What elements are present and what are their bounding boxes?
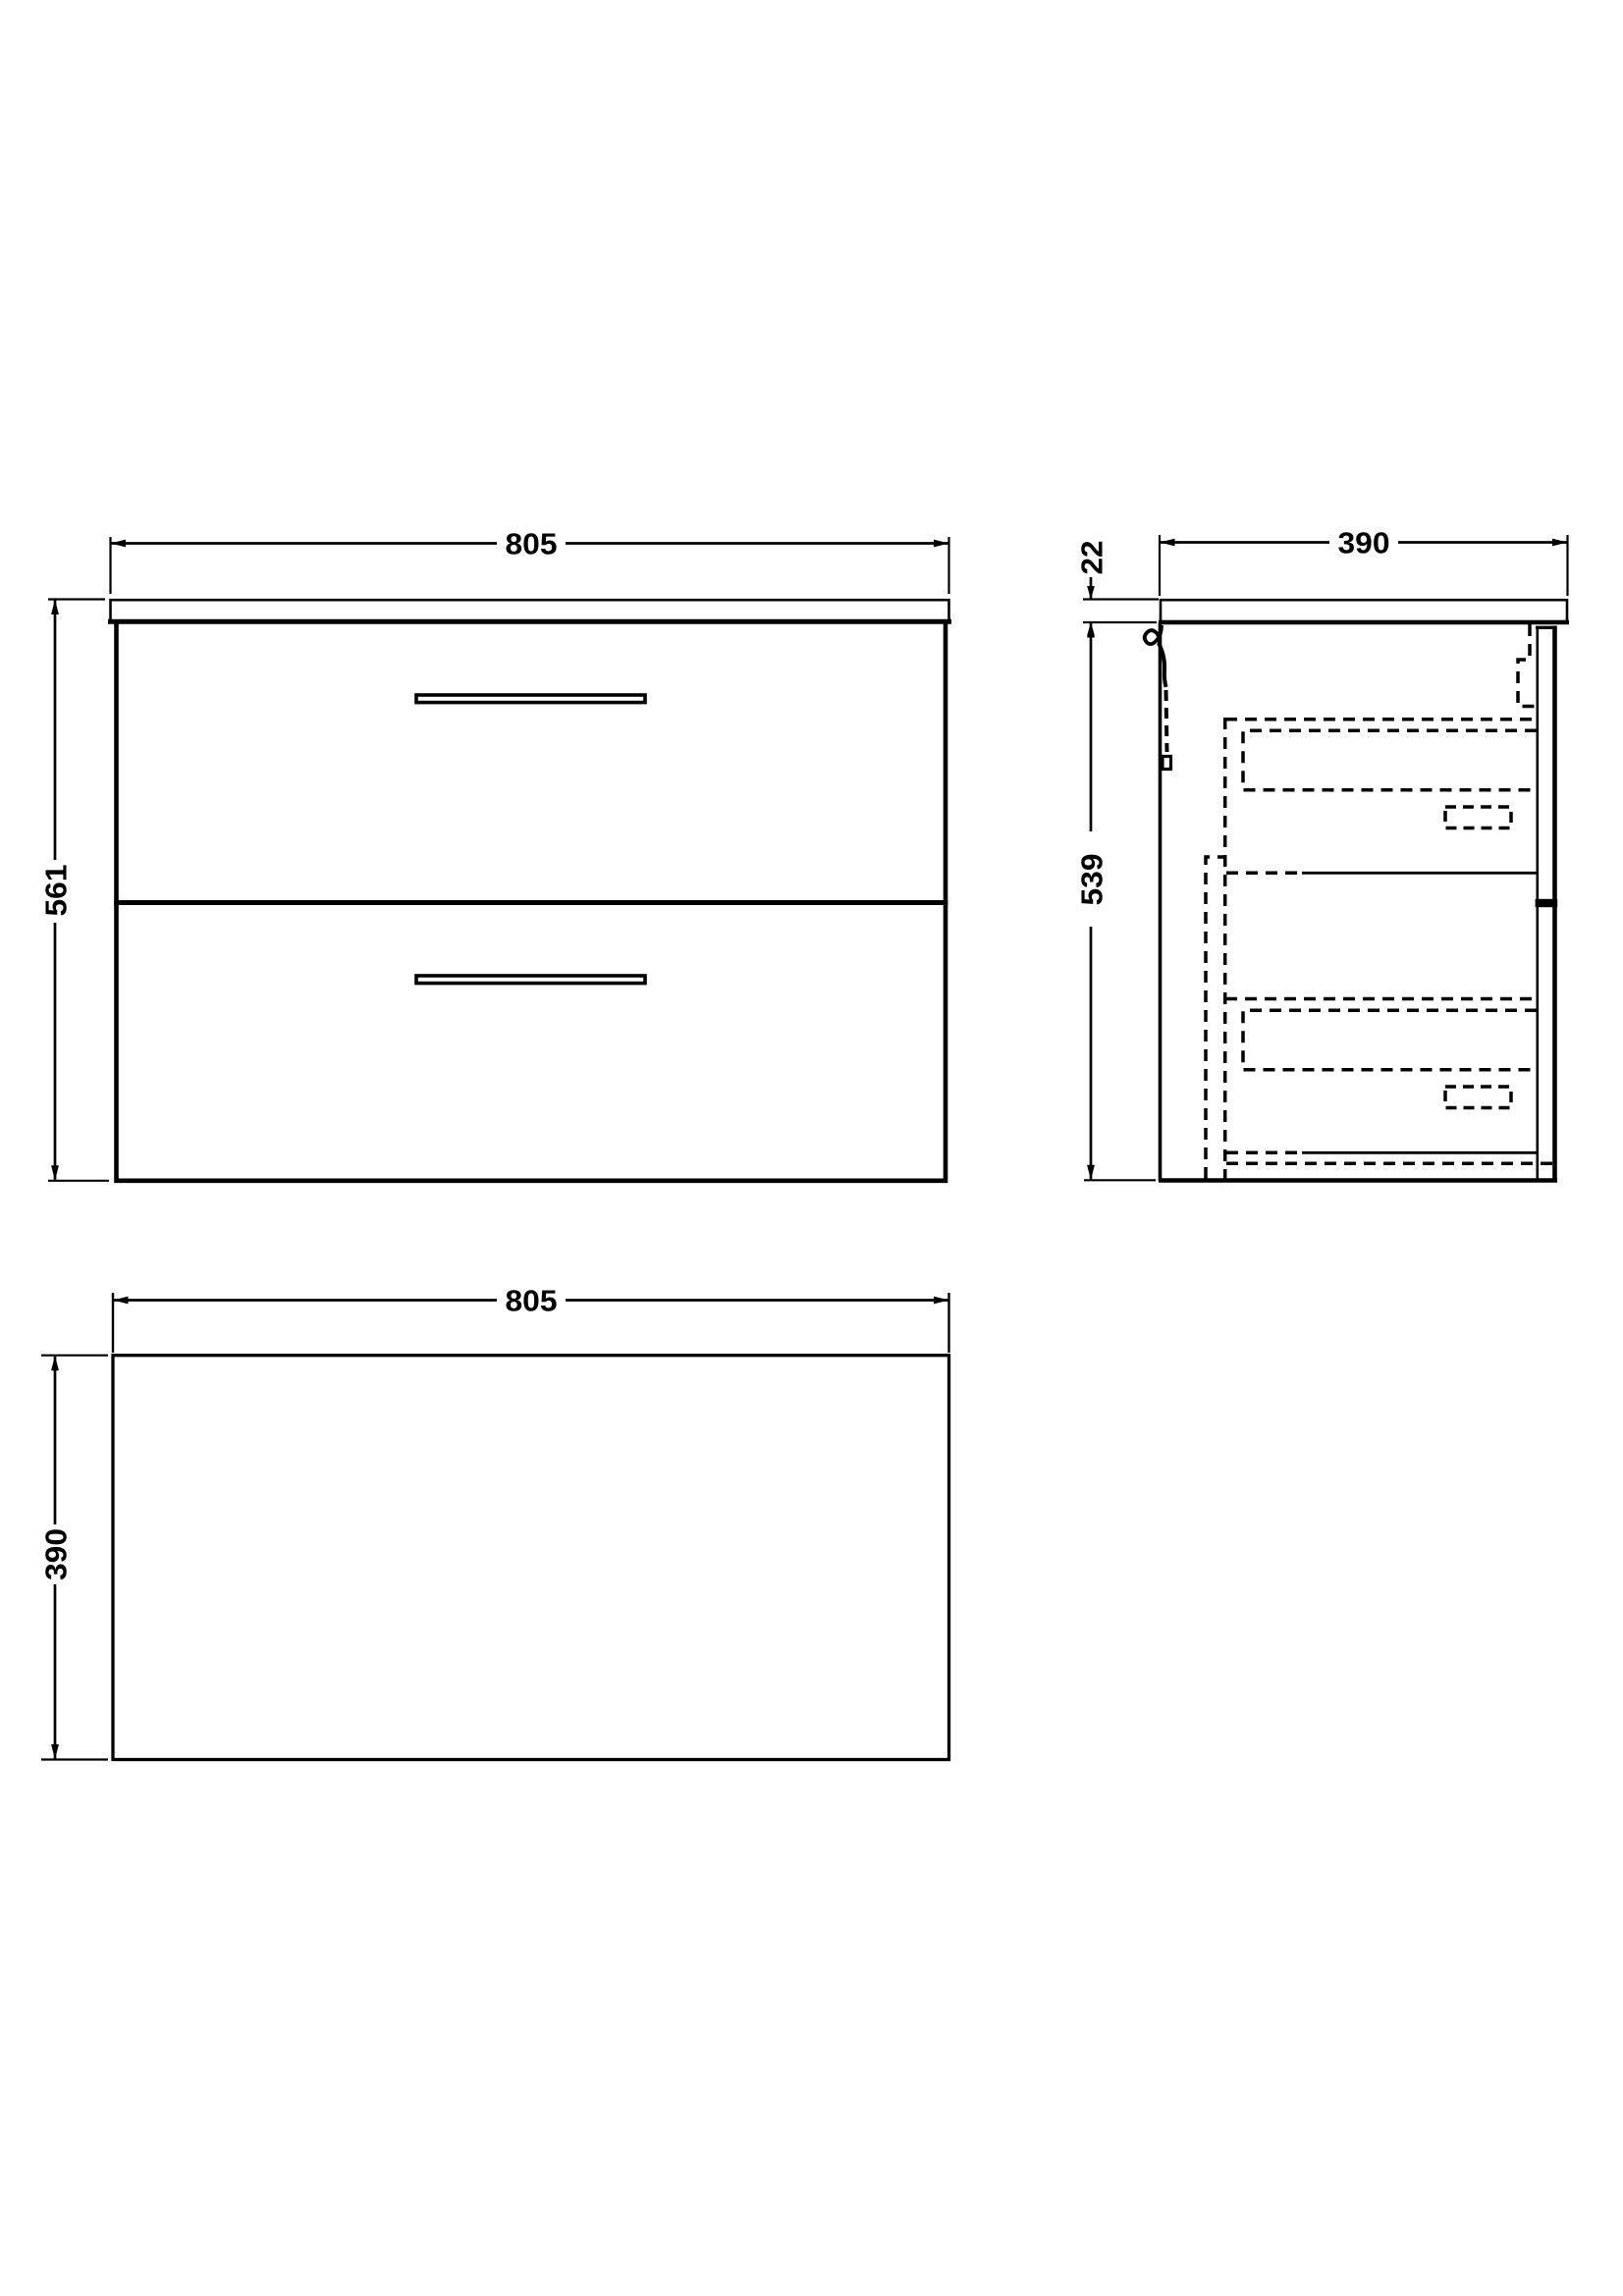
svg-text:805: 805 xyxy=(506,527,558,561)
svg-text:805: 805 xyxy=(506,1284,558,1318)
svg-text:22: 22 xyxy=(1075,541,1109,575)
svg-text:539: 539 xyxy=(1075,854,1109,906)
svg-text:390: 390 xyxy=(1338,526,1390,561)
svg-text:390: 390 xyxy=(39,1528,74,1580)
svg-text:561: 561 xyxy=(39,865,74,917)
